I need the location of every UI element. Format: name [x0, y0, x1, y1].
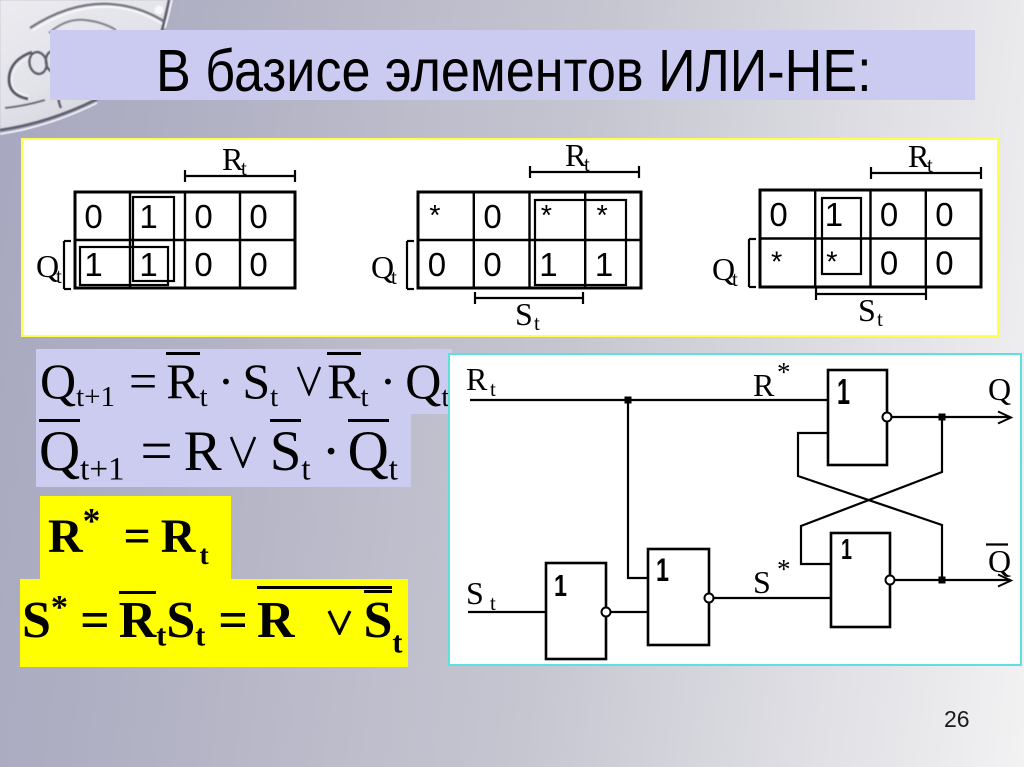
svg-text:S: S	[515, 296, 533, 332]
svg-text:0: 0	[84, 198, 102, 235]
svg-text:Q: Q	[988, 371, 1011, 407]
svg-text:1: 1	[841, 534, 852, 566]
svg-text:t: t	[584, 152, 590, 176]
svg-text:t: t	[391, 265, 397, 289]
svg-text:0: 0	[935, 196, 953, 233]
svg-text:1: 1	[554, 568, 567, 603]
svg-text:t: t	[534, 311, 540, 335]
svg-text:0: 0	[249, 198, 267, 235]
svg-text:1: 1	[595, 246, 613, 283]
svg-text:0: 0	[483, 198, 501, 235]
svg-text:Q: Q	[988, 543, 1011, 579]
svg-text:1: 1	[139, 246, 157, 283]
svg-text:S: S	[858, 292, 876, 328]
svg-text:t: t	[241, 156, 247, 180]
svg-text:0: 0	[935, 245, 953, 282]
svg-text:R: R	[753, 367, 775, 403]
svg-text:0: 0	[194, 246, 212, 283]
svg-text:t: t	[927, 153, 933, 177]
svg-text:t: t	[490, 377, 496, 401]
svg-text:1: 1	[139, 198, 157, 235]
svg-text:t: t	[56, 264, 62, 288]
svg-text:t: t	[877, 307, 883, 331]
svg-text:S: S	[753, 564, 771, 600]
svg-text:1: 1	[84, 246, 102, 283]
svg-text:*: *	[541, 200, 552, 232]
svg-text:t: t	[732, 267, 738, 291]
svg-text:0: 0	[428, 246, 446, 283]
svg-text:*: *	[771, 247, 782, 279]
svg-text:*: *	[429, 200, 440, 232]
svg-text:S: S	[466, 575, 484, 611]
svg-text:1: 1	[825, 196, 843, 233]
svg-text:1: 1	[539, 246, 557, 283]
svg-text:0: 0	[769, 196, 787, 233]
svg-text:0: 0	[483, 246, 501, 283]
svg-text:1: 1	[656, 552, 669, 588]
svg-text:0: 0	[194, 198, 212, 235]
svg-text:1: 1	[837, 371, 850, 412]
svg-text:0: 0	[880, 196, 898, 233]
svg-text:R: R	[466, 361, 488, 397]
svg-text:*: *	[777, 554, 791, 584]
svg-text:0: 0	[880, 245, 898, 282]
svg-text:0: 0	[249, 246, 267, 283]
svg-text:*: *	[777, 357, 791, 387]
svg-text:*: *	[596, 200, 607, 232]
